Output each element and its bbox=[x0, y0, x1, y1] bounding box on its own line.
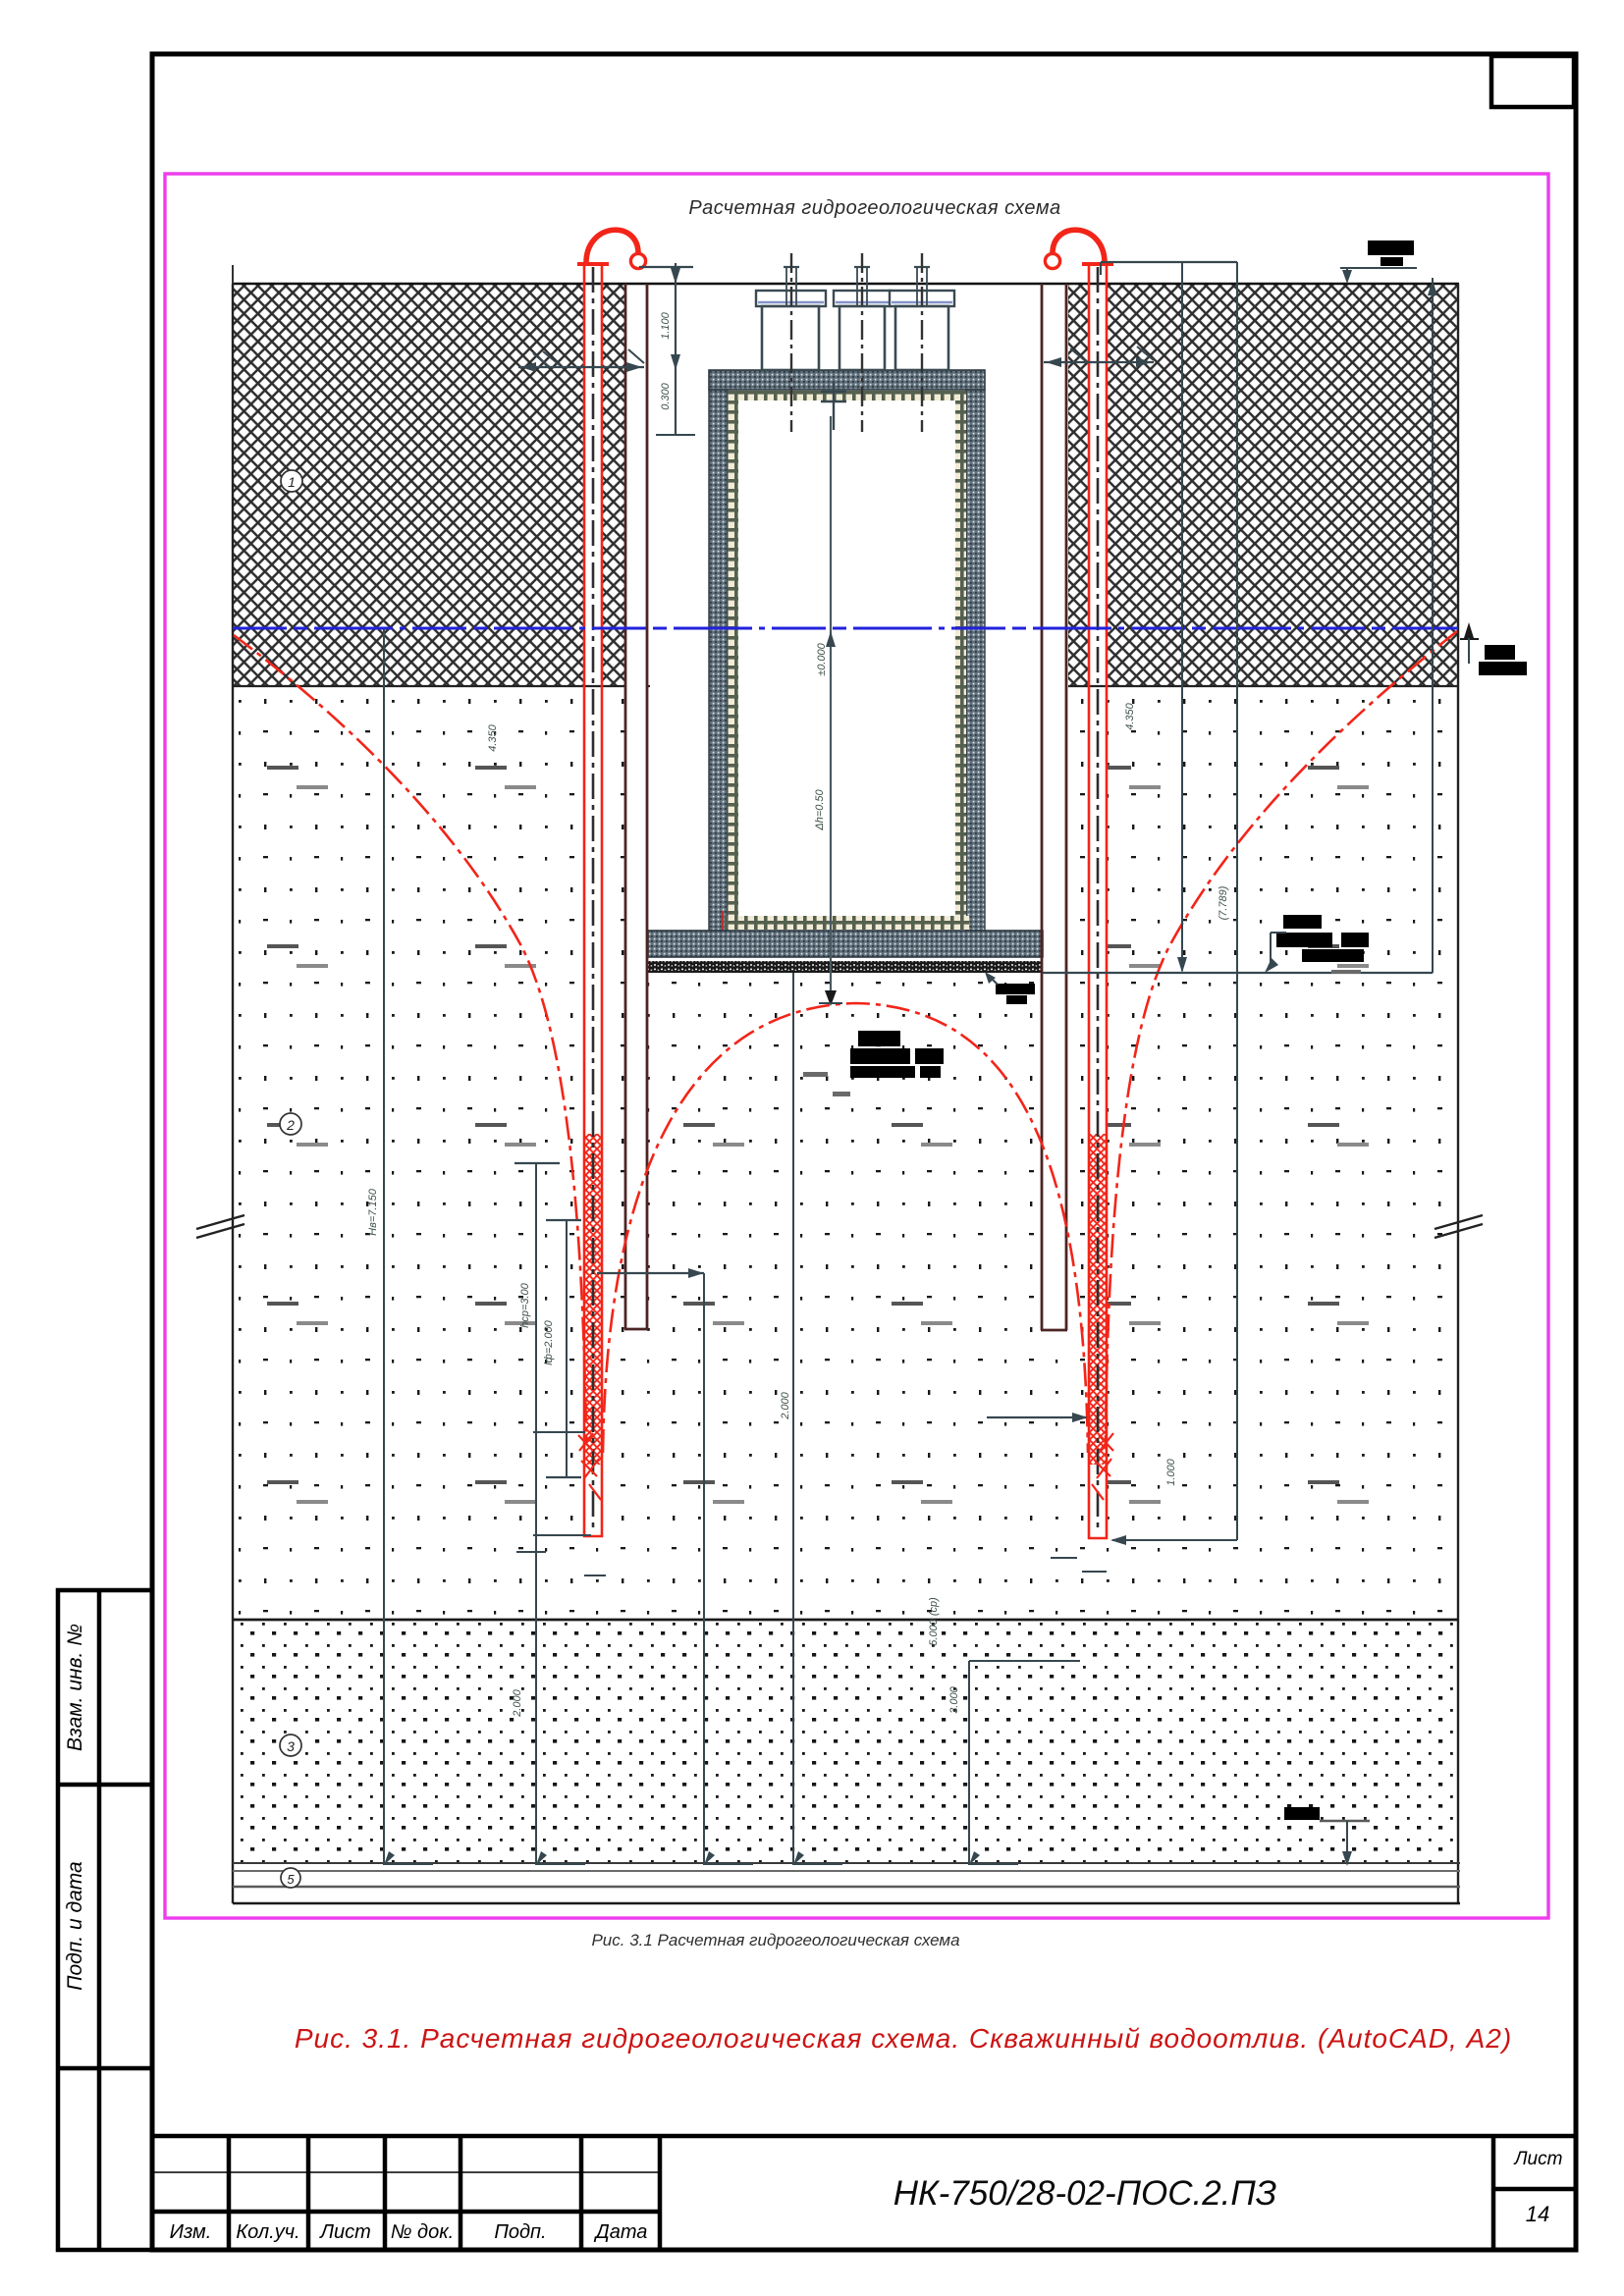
svg-text:Подп. и дата: Подп. и дата bbox=[64, 1861, 86, 1990]
svg-text:1: 1 bbox=[288, 474, 296, 490]
svg-text:Рис. 3.1 Расчетная гидрогеолог: Рис. 3.1 Расчетная гидрогеологическая сх… bbox=[591, 1931, 959, 1949]
svg-text:Взам. инв. №: Взам. инв. № bbox=[64, 1624, 86, 1751]
svg-text:Нв=7.150: Нв=7.150 bbox=[367, 1188, 379, 1236]
svg-text:±0.000: ±0.000 bbox=[816, 642, 828, 675]
svg-text:5: 5 bbox=[287, 1872, 295, 1887]
svg-text:5.000 (ср): 5.000 (ср) bbox=[928, 1597, 940, 1646]
svg-text:0.300: 0.300 bbox=[660, 382, 672, 409]
svg-text:1.100: 1.100 bbox=[660, 311, 672, 339]
svg-text:Кол.уч.: Кол.уч. bbox=[236, 2221, 299, 2243]
svg-text:2: 2 bbox=[286, 1117, 295, 1133]
svg-text:Лист: Лист bbox=[318, 2221, 371, 2243]
svg-text:4.350: 4.350 bbox=[1124, 702, 1136, 729]
svg-text:(7.789): (7.789) bbox=[1218, 885, 1229, 920]
svg-text:Рис. 3.1. Расчетная гидрогеоло: Рис. 3.1. Расчетная гидрогеологическая с… bbox=[295, 2023, 1512, 2054]
svg-text:Δh=0.50: Δh=0.50 bbox=[814, 788, 826, 830]
svg-text:Изм.: Изм. bbox=[170, 2221, 212, 2243]
svg-text:№ док.: № док. bbox=[391, 2221, 454, 2243]
svg-text:2.000: 2.000 bbox=[780, 1391, 791, 1419]
svg-text:lф=2.000: lф=2.000 bbox=[543, 1319, 555, 1364]
svg-text:Лист: Лист bbox=[1513, 2149, 1563, 2169]
svg-text:Подп.: Подп. bbox=[494, 2221, 546, 2243]
svg-text:14: 14 bbox=[1526, 2202, 1549, 2226]
svg-text:1.000: 1.000 bbox=[1165, 1458, 1177, 1485]
svg-text:2.000: 2.000 bbox=[512, 1688, 523, 1717]
svg-text:hср=3.00: hср=3.00 bbox=[519, 1282, 531, 1327]
svg-text:3.000: 3.000 bbox=[948, 1685, 960, 1713]
svg-text:3: 3 bbox=[287, 1738, 295, 1754]
svg-text:Дата: Дата bbox=[594, 2221, 648, 2243]
svg-text:4.350: 4.350 bbox=[487, 723, 499, 751]
svg-text:Расчетная гидрогеологическая с: Расчетная гидрогеологическая схема bbox=[688, 197, 1060, 219]
svg-text:НК-750/28-02-ПОС.2.ПЗ: НК-750/28-02-ПОС.2.ПЗ bbox=[893, 2174, 1276, 2213]
